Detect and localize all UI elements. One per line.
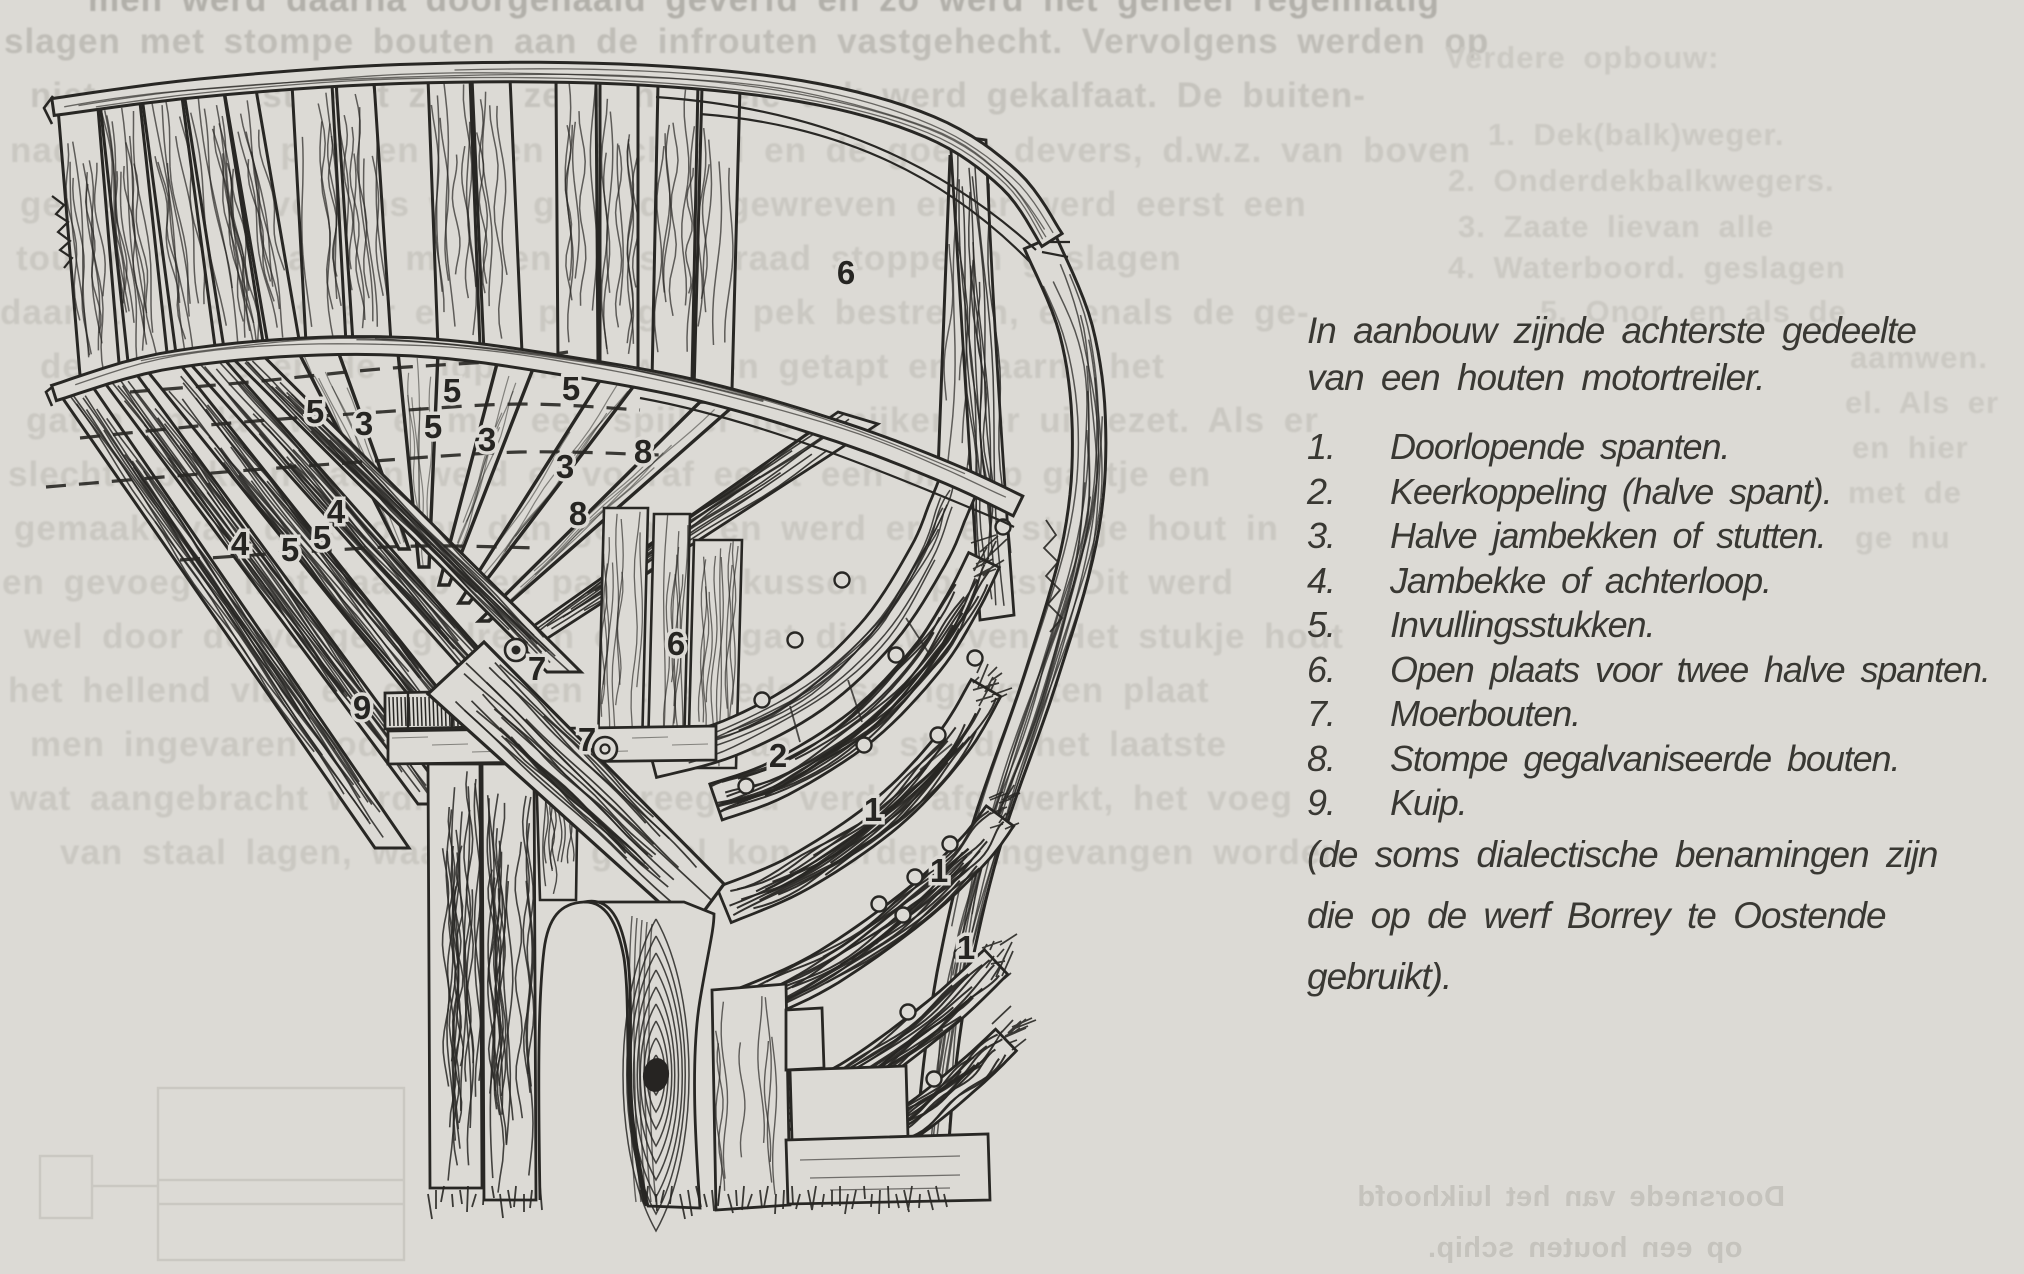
svg-text:3: 3 [478,421,496,458]
svg-text:8: 8 [569,495,587,532]
svg-text:8: 8 [634,433,652,470]
svg-text:5: 5 [443,372,461,409]
svg-text:1: 1 [957,929,975,966]
svg-text:7: 7 [578,721,596,758]
svg-text:7: 7 [528,650,546,687]
svg-text:5: 5 [424,408,442,445]
svg-text:9: 9 [353,689,371,726]
svg-text:5: 5 [562,370,580,407]
svg-text:1: 1 [864,791,882,828]
svg-text:3: 3 [556,448,574,485]
svg-text:2: 2 [769,737,787,774]
svg-text:4: 4 [231,525,250,562]
svg-text:5: 5 [306,393,324,430]
svg-text:5: 5 [313,519,331,556]
svg-text:1: 1 [930,852,948,889]
svg-text:6: 6 [667,625,685,662]
svg-text:5: 5 [281,531,299,568]
svg-text:6: 6 [837,254,855,291]
svg-text:3: 3 [355,405,373,442]
